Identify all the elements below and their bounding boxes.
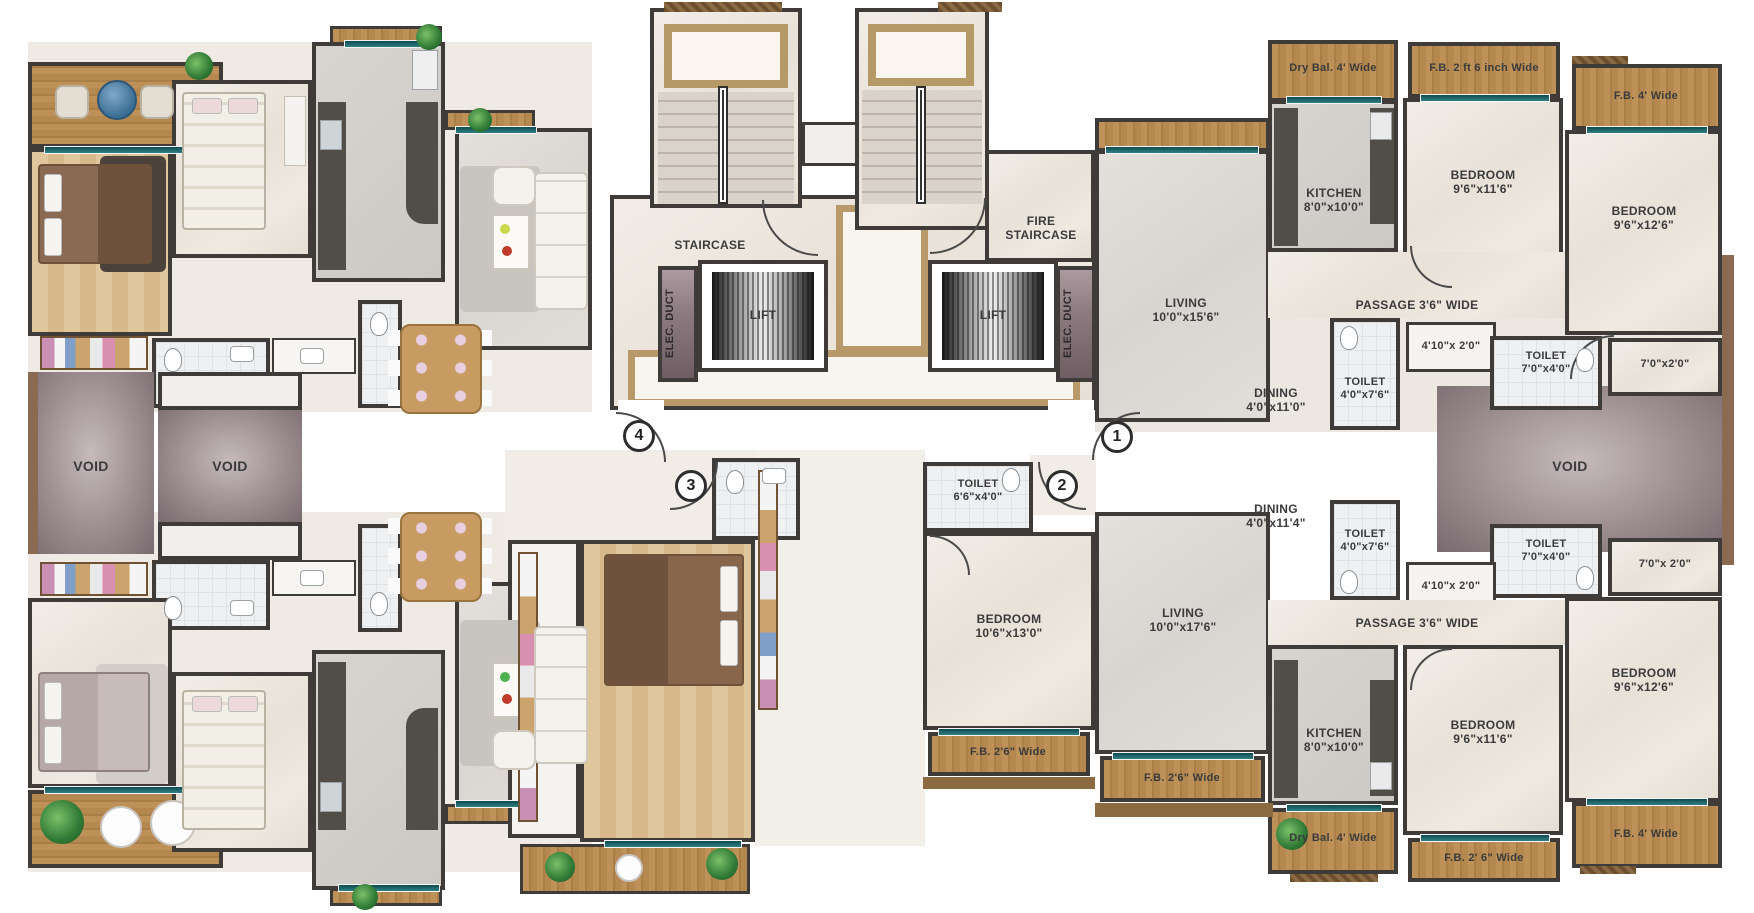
- unit3-wardrobe: [40, 562, 148, 596]
- unit4-toilet-2-wc: [370, 312, 388, 336]
- unit2-strip-label: 7'0"x 2'0": [1612, 558, 1718, 571]
- unit2-bedroom-a-label: BEDROOM 9'6"x11'6": [1412, 718, 1554, 747]
- unit1-bedroom-a-window: [1420, 94, 1550, 102]
- unit1-kitchen-label: KITCHEN 8'0"x10'0": [1284, 186, 1384, 215]
- unit3-toilet-1-basin: [230, 600, 254, 616]
- room-dims: 4'0"x11'0": [1228, 400, 1324, 414]
- fire-staircase-roof-hatch: [938, 2, 1002, 12]
- unit3-master2-balcony-plant-1: [545, 852, 575, 882]
- fire-staircase-landing: [868, 24, 974, 86]
- room-dims: 9'6"x12'6": [1574, 680, 1714, 694]
- unit1-passage-label: PASSAGE 3'6" WIDE: [1312, 298, 1522, 312]
- unit3-toilet-1-wc: [164, 596, 182, 620]
- unit4-toilet-1-wc: [164, 348, 182, 372]
- unit2-bedroom-a-window: [1420, 834, 1550, 842]
- room-dims: 8'0"x10'0": [1284, 740, 1384, 754]
- room-dims: 9'6"x11'6": [1412, 182, 1554, 196]
- right-void-label: VOID: [1520, 458, 1620, 475]
- flat-number-2: 2: [1046, 470, 1078, 502]
- unit2-fb-4-label: F.B. 4' Wide: [1596, 828, 1696, 841]
- unit3-kitchen-balcony-plant: [352, 884, 378, 910]
- unit4-dining-chairs-left: [388, 330, 400, 346]
- unit1-fb-26-label: F.B. 2 ft 6 inch Wide: [1410, 62, 1558, 75]
- bed-pillow: [228, 696, 258, 712]
- unit2-dining-label: DINING 4'0"x11'4": [1228, 502, 1324, 531]
- unit2-fb-4-hatch: [1580, 866, 1636, 874]
- elec-duct-left-label: ELEC. DUCT: [664, 272, 692, 376]
- unit3-kitchen-sink: [320, 782, 342, 812]
- unit1-dining-label: DINING 4'0"x11'0": [1228, 386, 1324, 415]
- unit4-sofa: [534, 172, 588, 310]
- room-dims: 9'6"x11'6": [1412, 732, 1554, 746]
- unit1-toilet-a-label: TOILET 4'0"x7'6": [1332, 376, 1398, 402]
- unit3-master-bed: [38, 672, 150, 772]
- unit1-fb-4-label: F.B. 4' Wide: [1596, 90, 1696, 103]
- unit4-balcony-table: [97, 80, 137, 120]
- fire-staircase-lobby: [985, 150, 1095, 262]
- center-void-slab-bottom: [158, 522, 302, 560]
- unit3-toilet-2-wc: [370, 592, 388, 616]
- unit2-toilet-a-label: TOILET 4'0"x7'6": [1332, 528, 1398, 554]
- unit3-armchair: [492, 730, 536, 770]
- unit4-dining-table: [400, 324, 482, 414]
- room-dims: 7'0"x4'0": [1492, 551, 1600, 564]
- bed-pillow: [720, 620, 738, 666]
- unit2-fb-26-mid-label: F.B. 2'6" Wide: [938, 746, 1078, 759]
- room-dims: 7'0"x4'0": [1492, 363, 1600, 376]
- flat-number-4: 4: [623, 420, 655, 452]
- unit4-living-window: [455, 126, 537, 134]
- unit3-table-accent-red: [502, 694, 512, 704]
- room-name: TOILET: [1345, 528, 1386, 540]
- room-dims: 9'6"x12'6": [1574, 218, 1714, 232]
- room-name: BEDROOM: [1451, 168, 1516, 182]
- unit3-toilet-3: [712, 458, 800, 540]
- unit2-fb-26-left-base: [1095, 803, 1273, 817]
- room-dims: 4'0"x7'6": [1332, 389, 1398, 402]
- room-dims: 10'6"x13'0": [935, 626, 1083, 640]
- unit4-living-balcony-plant: [468, 108, 492, 132]
- unit4-bedroom-2-desk: [284, 96, 306, 166]
- unit2-toilet-a-wc: [1340, 570, 1358, 594]
- unit1-bedroom-b-label: BEDROOM 9'6"x12'6": [1574, 204, 1714, 233]
- center-void-slab-top: [158, 372, 302, 410]
- room-name: DINING: [1254, 386, 1298, 400]
- unit4-vanity-basin: [300, 348, 324, 364]
- unit2-fb-26-left-label: F.B. 2'6" Wide: [1112, 772, 1252, 785]
- right-void-edge-wall: [1722, 255, 1734, 565]
- flat-number-1: 1: [1101, 421, 1133, 453]
- unit4-balcony-chair-2: [140, 85, 174, 119]
- room-name: BEDROOM: [1451, 718, 1516, 732]
- unit2-bedroom-c-window: [938, 728, 1080, 736]
- unit4-table-accent-lime: [500, 224, 510, 234]
- room-dims: 10'0"x15'6": [1126, 310, 1246, 324]
- unit4-wardrobe: [40, 336, 148, 370]
- unit3-kitchen-counter-right: [406, 708, 438, 830]
- bed-pillow: [44, 174, 62, 212]
- flat-number-3: 3: [675, 470, 707, 502]
- bed-pillow: [192, 98, 222, 114]
- left-void-edge-wall: [28, 372, 38, 554]
- center-void-label: VOID: [168, 458, 292, 475]
- unit4-toilet-1-basin: [230, 346, 254, 362]
- unit2-kitchen-sink: [1370, 762, 1392, 790]
- bed-pillow: [192, 696, 222, 712]
- unit4-coffee-table: [492, 214, 530, 270]
- elec-duct-right-label: ELEC. DUCT: [1062, 272, 1090, 376]
- fire-staircase-handrail: [916, 86, 926, 204]
- entrance-gap-right: [1048, 400, 1094, 414]
- unit3-dining-table: [400, 512, 482, 602]
- unit3-dressing-wardrobe: [758, 470, 778, 710]
- unit3-bed-2: [182, 690, 266, 830]
- unit2-toilet-b-label: TOILET 7'0"x4'0": [1492, 538, 1600, 564]
- unit4-kitchen-counter-right: [406, 102, 438, 224]
- unit2-fb-26-b-label: F.B. 2' 6" Wide: [1414, 852, 1554, 865]
- unit4-balcony-chair-1: [55, 85, 89, 119]
- handrail-line: [722, 90, 724, 200]
- unit3-balcony-window: [44, 786, 196, 794]
- unit1-toilet-b-label: TOILET 7'0"x4'0": [1492, 350, 1600, 376]
- bed-pillow: [44, 726, 62, 764]
- unit3-dining-chairs-left: [388, 518, 400, 534]
- room-name: LIVING: [1162, 606, 1204, 620]
- unit3-balcony-table-1: [100, 806, 142, 848]
- unit3-master2-balcony-bowl: [615, 854, 643, 882]
- unit2-dry-balcony-hatch: [1290, 874, 1378, 882]
- unit1-toilet-a-wc: [1340, 326, 1358, 350]
- unit1-dry-balcony-label: Dry Bal. 4' Wide: [1274, 62, 1392, 75]
- unit4-table-accent-red: [502, 246, 512, 256]
- unit4-kitchen-balcony-plant: [416, 24, 442, 50]
- handrail-line: [920, 90, 922, 200]
- room-name: BEDROOM: [977, 612, 1042, 626]
- room-dims: 8'0"x10'0": [1284, 200, 1384, 214]
- bed-duvet: [606, 556, 668, 684]
- room-dims: 4'0"x7'6": [1332, 541, 1398, 554]
- unit4-master-window: [44, 146, 196, 154]
- unit4-kitchen-fridge: [412, 50, 438, 90]
- unit2-bedroom-b: [1565, 597, 1722, 802]
- unit3-toilet-3-wc: [726, 470, 744, 494]
- unit3-sofa: [534, 626, 588, 764]
- unit1-living-window: [1105, 146, 1259, 154]
- staircase-landing: [664, 24, 788, 88]
- unit2-bedroom-b-label: BEDROOM 9'6"x12'6": [1574, 666, 1714, 695]
- room-name: TOILET: [1526, 350, 1567, 362]
- unit3-toilet-3-basin: [762, 468, 786, 484]
- bed-duvet: [98, 166, 150, 262]
- room-name: TOILET: [1526, 538, 1567, 550]
- bed-pillow: [228, 98, 258, 114]
- room-dims: 10'0"x17'6": [1120, 620, 1246, 634]
- unit3-vanity-basin: [300, 570, 324, 586]
- room-name: KITCHEN: [1306, 186, 1361, 200]
- bed-duvet: [98, 674, 148, 770]
- room-name: DINING: [1254, 502, 1298, 516]
- unit4-armchair: [492, 166, 536, 206]
- lift-right-label: LIFT: [928, 308, 1058, 322]
- unit2-living-label: LIVING 10'0"x17'6": [1120, 606, 1246, 635]
- unit3-balcony-plant: [40, 800, 84, 844]
- unit2-niche-label: 4'10"x 2'0": [1408, 580, 1494, 593]
- room-name: LIVING: [1165, 296, 1207, 310]
- floor-plan: STAIRCASE FIRE STAIRCASE ELEC. DUCT ELEC…: [0, 0, 1754, 913]
- unit3-table-accent-lime: [500, 672, 510, 682]
- unit3-master2-window: [604, 840, 742, 848]
- unit1-kitchen-sink: [1370, 112, 1392, 140]
- unit1-fb4-hatch: [1572, 56, 1628, 64]
- unit3-master2-balcony-plant-2: [706, 848, 738, 880]
- bed-pillow: [720, 566, 738, 612]
- unit1-kitchen-window: [1286, 96, 1382, 104]
- unit1-living-label: LIVING 10'0"x15'6": [1126, 296, 1246, 325]
- room-name: TOILET: [958, 478, 999, 490]
- unit1-living-room: [1095, 150, 1270, 422]
- room-name: KITCHEN: [1306, 726, 1361, 740]
- left-void-label: VOID: [38, 458, 144, 475]
- unit4-bed-2: [182, 92, 266, 230]
- unit1-bedroom-b-window: [1586, 126, 1708, 134]
- room-name: BEDROOM: [1612, 666, 1677, 680]
- unit2-fb-26-mid-base: [923, 777, 1095, 789]
- unit2-kitchen-label: KITCHEN 8'0"x10'0": [1284, 726, 1384, 755]
- unit2-dry-balcony-label: Dry Bal. 4' Wide: [1274, 832, 1392, 845]
- unit2-kitchen-window: [1286, 804, 1382, 812]
- bed-pillow: [44, 682, 62, 720]
- unit1-bedroom-a-label: BEDROOM 9'6"x11'6": [1412, 168, 1554, 197]
- unit2-toilet-c-label: TOILET 6'6"x4'0": [928, 478, 1028, 504]
- unit4-master-bed: [38, 164, 152, 264]
- staircase-handrail: [718, 86, 728, 204]
- unit1-strip-label: 7'0"x2'0": [1612, 358, 1718, 371]
- staircase-label: STAIRCASE: [652, 238, 768, 252]
- staircase-roof-hatch: [664, 2, 782, 12]
- unit1-kitchen-counter-left: [1274, 108, 1298, 246]
- lift-left-label: LIFT: [698, 308, 828, 322]
- unit1-niche-label: 4'10"x 2'0": [1408, 340, 1494, 353]
- bed-pillow: [44, 218, 62, 256]
- room-dims: 6'6"x4'0": [928, 491, 1028, 504]
- unit2-living-window: [1112, 752, 1254, 760]
- unit4-kitchen-sink: [320, 120, 342, 150]
- unit2-bedroom-b-window: [1586, 798, 1708, 806]
- room-name: TOILET: [1345, 376, 1386, 388]
- fire-staircase-label: FIRE STAIRCASE: [995, 214, 1087, 243]
- unit3-master2-bed: [604, 554, 744, 686]
- room-dims: 4'0"x11'4": [1228, 516, 1324, 530]
- unit2-toilet-b-wc: [1576, 566, 1594, 590]
- room-name: BEDROOM: [1612, 204, 1677, 218]
- unit2-passage-label: PASSAGE 3'6" WIDE: [1312, 616, 1522, 630]
- unit2-bedroom-c-label: BEDROOM 10'6"x13'0": [935, 612, 1083, 641]
- unit4-plant-top: [185, 52, 213, 80]
